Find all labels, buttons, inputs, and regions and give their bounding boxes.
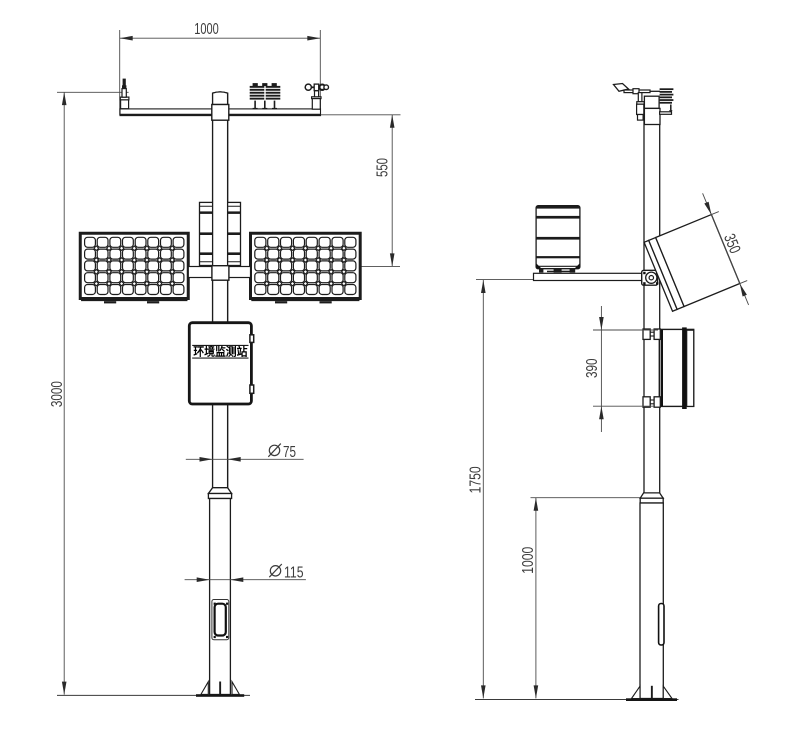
svg-text:390: 390 bbox=[584, 358, 601, 378]
svg-text:1000: 1000 bbox=[520, 547, 537, 574]
svg-text:550: 550 bbox=[375, 158, 392, 177]
svg-text:环境监测站: 环境监测站 bbox=[193, 345, 248, 359]
svg-text:3000: 3000 bbox=[49, 381, 66, 407]
svg-text:1000: 1000 bbox=[194, 21, 219, 38]
svg-text:75: 75 bbox=[283, 444, 296, 461]
svg-text:115: 115 bbox=[284, 564, 304, 581]
svg-text:1750: 1750 bbox=[467, 466, 484, 493]
